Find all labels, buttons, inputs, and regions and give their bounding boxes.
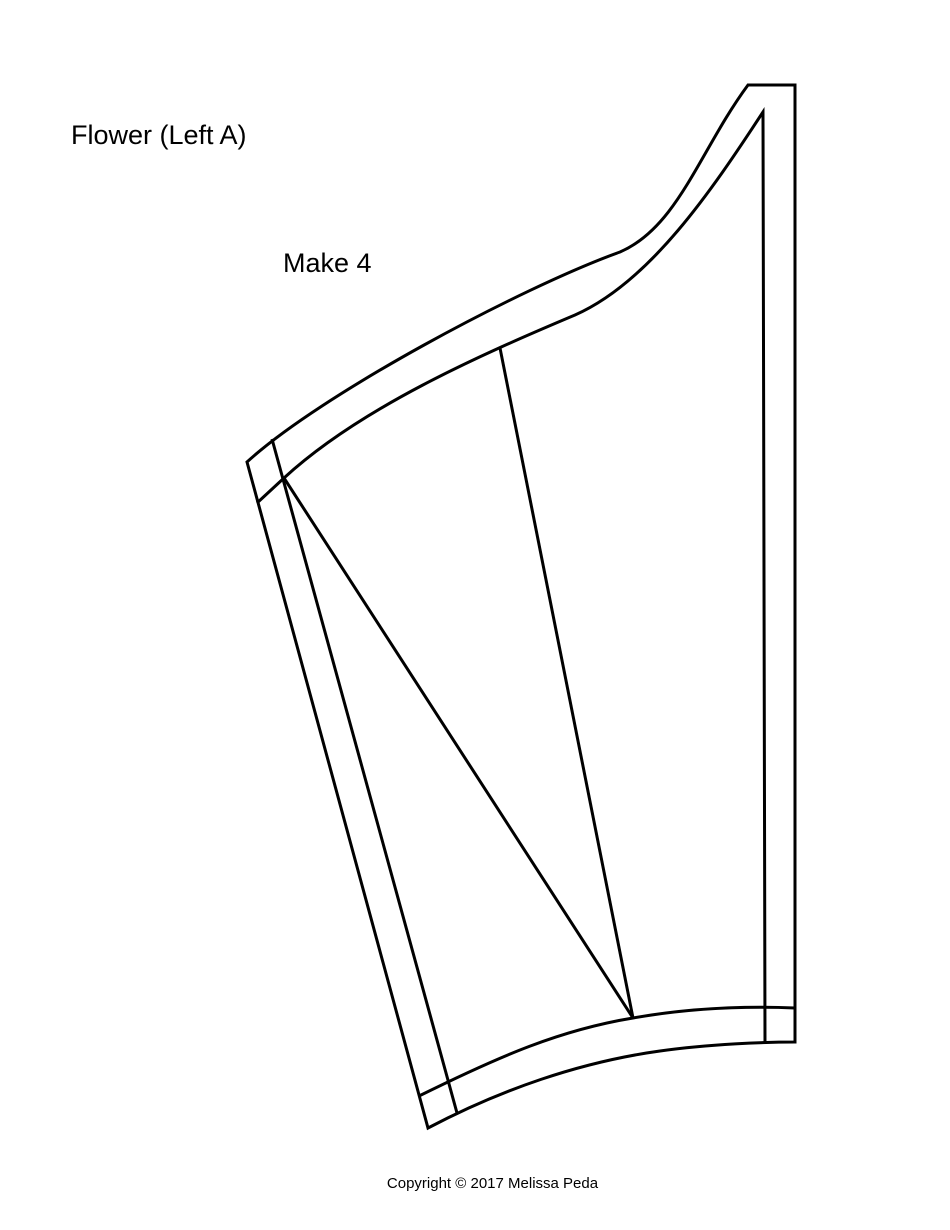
copyright-notice: Copyright © 2017 Melissa Peda — [0, 1175, 950, 1193]
pattern-page: Flower (Left A) Make 4 Copyright © 2017 … — [0, 0, 950, 1230]
pattern-piece-lines — [247, 85, 795, 1128]
stitching-line-top-right — [257, 112, 765, 1044]
stitching-line-bottom — [419, 1007, 795, 1096]
cutting-line-outline — [247, 85, 795, 1128]
pattern-piece-diagram — [0, 0, 950, 1230]
stitching-line-left — [272, 439, 457, 1113]
